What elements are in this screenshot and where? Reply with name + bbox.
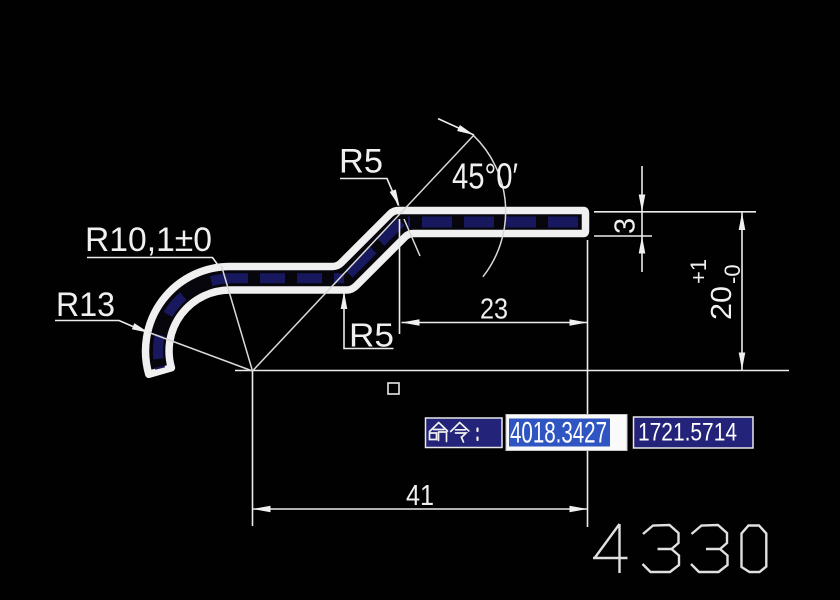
svg-text:3: 3: [610, 218, 642, 234]
svg-text:R10,1±0: R10,1±0: [85, 221, 212, 259]
svg-text:45°0′: 45°0′: [452, 156, 518, 197]
svg-text:R5: R5: [339, 143, 383, 181]
svg-text:+1: +1: [686, 259, 711, 284]
svg-text:1721.5714: 1721.5714: [638, 419, 737, 447]
svg-text:R5: R5: [349, 317, 394, 354]
svg-text:R13: R13: [56, 286, 115, 324]
svg-text:-0: -0: [720, 264, 745, 284]
svg-text:23: 23: [480, 294, 508, 326]
svg-text:20: 20: [706, 286, 738, 320]
svg-text:4018.3427: 4018.3427: [510, 417, 607, 450]
svg-text:41: 41: [406, 480, 434, 512]
